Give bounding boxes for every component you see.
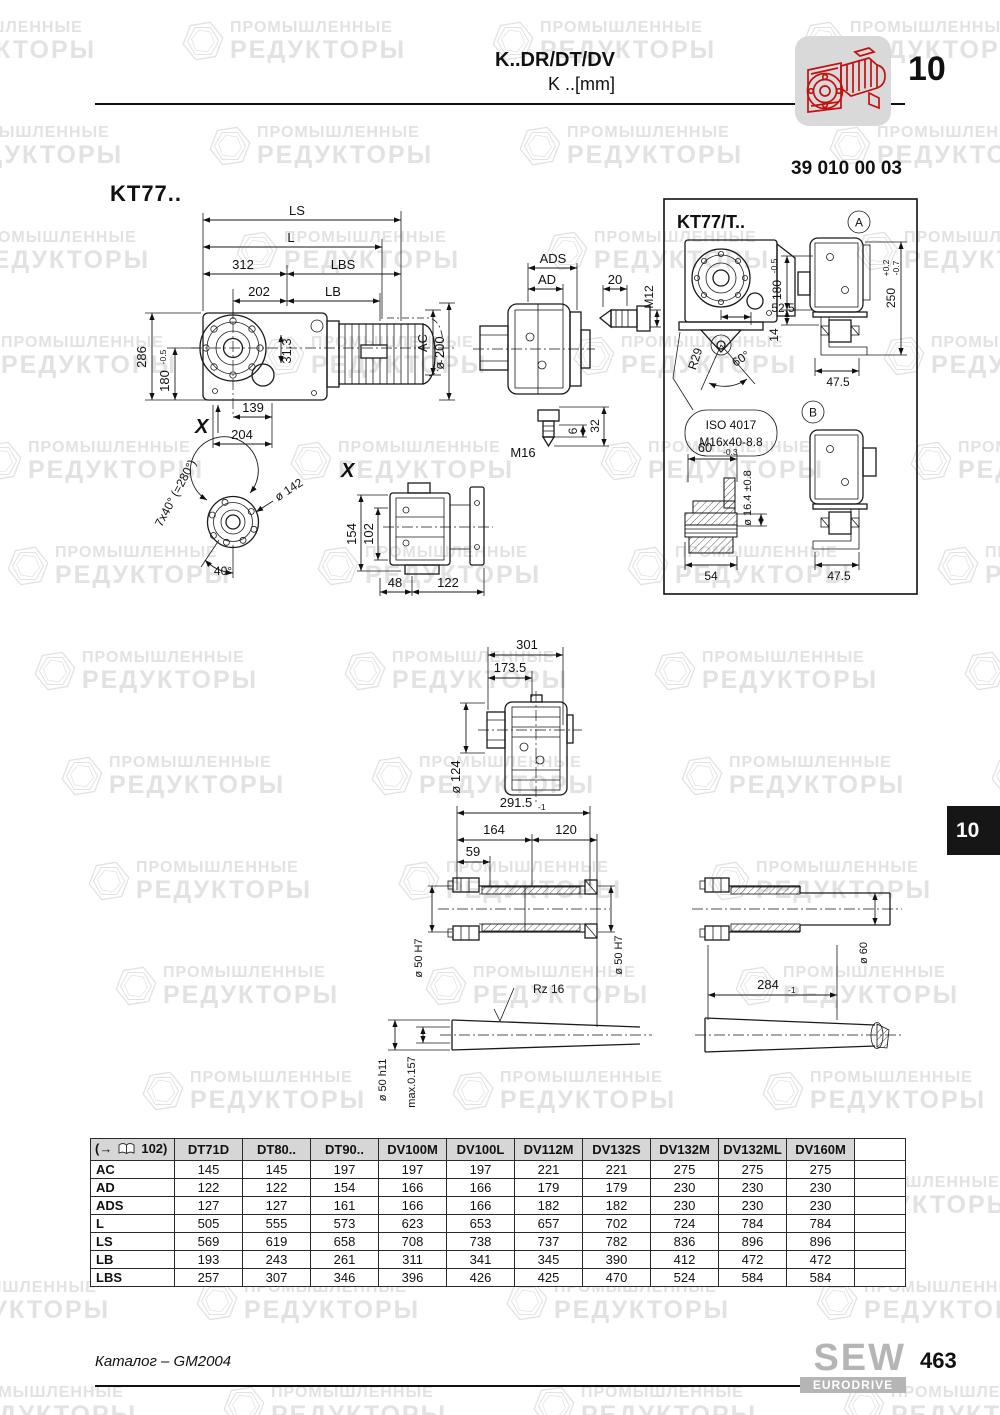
dim-value: 307 bbox=[243, 1269, 311, 1287]
dim-value: 584 bbox=[787, 1269, 855, 1287]
dim-60deg: 60° bbox=[729, 348, 752, 370]
customer-shaft-right bbox=[695, 1018, 902, 1052]
dim-204: 204 bbox=[231, 427, 253, 442]
dim-value: 122 bbox=[243, 1179, 311, 1197]
dim-value: 275 bbox=[787, 1161, 855, 1179]
watermark: ПРОМЫШЛЕННЫЕРЕДУКТОРЫ bbox=[652, 648, 878, 694]
dim-525: 52.5 bbox=[771, 301, 795, 315]
dim-180-tol: -0.5 bbox=[158, 349, 168, 364]
dim-120: 120 bbox=[555, 822, 577, 837]
dim-value: 230 bbox=[651, 1179, 719, 1197]
view-x-label: X bbox=[340, 460, 356, 482]
dim-value: 412 bbox=[651, 1251, 719, 1269]
dim-dia142: ø 142 bbox=[272, 475, 306, 504]
watermark: ПРОМЫШЛЕННЫЕРЕДУКТОРЫ bbox=[0, 18, 96, 64]
dim-dia60: ø 60 bbox=[858, 942, 870, 964]
dim-6: 6 bbox=[566, 427, 580, 434]
dim-value: 653 bbox=[447, 1215, 515, 1233]
row-label: L bbox=[91, 1215, 175, 1233]
dim-value: 396 bbox=[379, 1269, 447, 1287]
dim-250-told: -0.7 bbox=[891, 260, 901, 275]
column-header: DT71D bbox=[175, 1139, 243, 1161]
dim-value: 657 bbox=[515, 1215, 583, 1233]
book-icon bbox=[118, 1143, 135, 1158]
dim-475b: 47.5 bbox=[827, 569, 851, 583]
kt77t-label: KT77/T.. bbox=[677, 212, 745, 232]
dim-dia50-left: ø 50 H7 bbox=[413, 938, 425, 977]
watermark: ПРОМЫШЛЕННЫЕРЕДУКТОРЫ bbox=[221, 1383, 447, 1415]
customer-shaft-left: Rz 16 ø 50 h11 max.0.157 bbox=[377, 982, 652, 1108]
dim-value: 345 bbox=[515, 1251, 583, 1269]
mid-view-body bbox=[478, 691, 582, 803]
dim-60: 60 bbox=[698, 440, 712, 455]
dim-164: 164 bbox=[483, 822, 505, 837]
dim-value: 122 bbox=[175, 1179, 243, 1197]
dim-value: 426 bbox=[447, 1269, 515, 1287]
dim-value: 573 bbox=[311, 1215, 379, 1233]
mid-view: 301 173.5 ø 124 bbox=[420, 625, 640, 805]
table-ref-cell: (→102) bbox=[91, 1139, 175, 1161]
dim-301: 301 bbox=[516, 637, 538, 652]
dim-value: 166 bbox=[379, 1179, 447, 1197]
table-header-row: (→102) DT71DDT80..DT90..DV100MDV100LDV11… bbox=[91, 1139, 906, 1161]
dim-value-empty bbox=[855, 1161, 906, 1179]
dim-l: L bbox=[287, 230, 294, 245]
dim-value: 127 bbox=[243, 1197, 311, 1215]
dim-value: 154 bbox=[311, 1179, 379, 1197]
front-view-dimensions: LS L 312 LBS 202 LB 286 180 -0.5 31.3 bbox=[134, 203, 455, 448]
dim-value: 584 bbox=[719, 1269, 787, 1287]
catalog-name: Каталог – GM2004 bbox=[95, 1353, 231, 1370]
dim-2915: 291.5 bbox=[500, 795, 533, 810]
front-view bbox=[191, 303, 457, 417]
dim-value: 896 bbox=[719, 1233, 787, 1251]
column-header: DV100M bbox=[379, 1139, 447, 1161]
dim-value: 145 bbox=[175, 1161, 243, 1179]
row-label: LB bbox=[91, 1251, 175, 1269]
dim-value: 182 bbox=[583, 1197, 651, 1215]
table-row: AD122122154166166179179230230230 bbox=[91, 1179, 906, 1197]
column-header: DV160M bbox=[787, 1139, 855, 1161]
side-tab-label: 10 bbox=[956, 819, 979, 843]
dim-value: 193 bbox=[175, 1251, 243, 1269]
dim-value: 784 bbox=[719, 1215, 787, 1233]
dim-value: 243 bbox=[243, 1251, 311, 1269]
dim-max-runout: max.0.157 bbox=[406, 1056, 418, 1107]
kt77t-box: KT77/T.. A 52.5 bbox=[663, 198, 918, 595]
dim-value: 197 bbox=[311, 1161, 379, 1179]
dim-value: 221 bbox=[515, 1161, 583, 1179]
dim-m16: M16 bbox=[510, 445, 535, 460]
watermark: ПРОМЫШЛЕННЫЕРЕДУКТОРЫ bbox=[140, 1068, 366, 1114]
dim-value: 197 bbox=[447, 1161, 515, 1179]
dim-20: 20 bbox=[608, 272, 622, 287]
column-header-empty bbox=[855, 1139, 906, 1161]
watermark: ПРОМЫШЛЕННЫЕРЕДУКТОРЫ bbox=[0, 123, 123, 169]
column-header: DT80.. bbox=[243, 1139, 311, 1161]
dim-value: 311 bbox=[379, 1251, 447, 1269]
sew-logo: SEW EURODRIVE bbox=[800, 1340, 906, 1393]
dim-m12: M12 bbox=[642, 285, 656, 309]
dim-122: 122 bbox=[437, 575, 459, 590]
dim-value: 261 bbox=[311, 1251, 379, 1269]
watermark: ПРОМЫШЛЕННЫЕРЕДУКТОРЫ bbox=[59, 753, 285, 799]
row-label: LBS bbox=[91, 1269, 175, 1287]
watermark: ПРОМЫШЛЕННЫЕРЕДУКТОРЫ bbox=[962, 648, 1000, 694]
dim-54: 54 bbox=[704, 569, 718, 583]
dim-value: 738 bbox=[447, 1233, 515, 1251]
dim-value: 221 bbox=[583, 1161, 651, 1179]
chapter-side-tab: 10 bbox=[947, 806, 1000, 855]
dim-table: (→102) DT71DDT80..DT90..DV100MDV100LDV11… bbox=[90, 1138, 906, 1287]
dim-dia200: ø 200 bbox=[432, 336, 447, 369]
dim-value: 555 bbox=[243, 1215, 311, 1233]
dim-value: 619 bbox=[243, 1233, 311, 1251]
dim-60-tol: -0.3 bbox=[723, 447, 738, 457]
catalog-page: ПРОМЫШЛЕННЫЕРЕДУКТОРЫПРОМЫШЛЕННЫЕРЕДУКТО… bbox=[0, 0, 1000, 1415]
column-header: DV100L bbox=[447, 1139, 515, 1161]
dim-value: 127 bbox=[175, 1197, 243, 1215]
dim-value: 623 bbox=[379, 1215, 447, 1233]
dim-ls: LS bbox=[289, 203, 305, 218]
table-row: AC145145197197197221221275275275 bbox=[91, 1161, 906, 1179]
sew-wordmark: SEW bbox=[800, 1340, 906, 1376]
units-subtitle: K ..[mm] bbox=[420, 72, 615, 96]
dim-250-tolu: +0.2 bbox=[881, 259, 891, 276]
dim-32: 32 bbox=[588, 419, 602, 433]
view-b-label: B bbox=[809, 406, 817, 420]
watermark: ПРОМЫШЛЕННЫЕРЕДУКТОРЫ bbox=[113, 963, 339, 1009]
dim-value: 569 bbox=[175, 1233, 243, 1251]
shaft-drawings: 291.5 -1 164 120 59 bbox=[370, 790, 1000, 1120]
dim-value: 341 bbox=[447, 1251, 515, 1269]
dim-284-tol: -1 bbox=[788, 985, 796, 995]
dim-ac: AC bbox=[415, 334, 430, 352]
row-label: LS bbox=[91, 1233, 175, 1251]
watermark: ПРОМЫШЛЕННЫЕРЕДУКТОРЫ bbox=[0, 1383, 137, 1415]
dim-value: 782 bbox=[583, 1233, 651, 1251]
detail-x-side-view: 154 102 48 122 bbox=[344, 483, 493, 596]
dim-value: 346 bbox=[311, 1269, 379, 1287]
dim-lbs: LBS bbox=[331, 257, 356, 272]
chapter-number: 10 bbox=[908, 50, 978, 89]
header-rule bbox=[95, 103, 905, 105]
watermark: ПРОМЫШЛЕННЫЕРЕДУКТОРЫ bbox=[908, 438, 1000, 484]
dim-250: 250 bbox=[884, 288, 898, 308]
m16-bolt: 6 32 M16 bbox=[510, 407, 609, 460]
watermark: ПРОМЫШЛЕННЫЕРЕДУКТОРЫ bbox=[180, 18, 406, 64]
dim-value-empty bbox=[855, 1251, 906, 1269]
dim-value: 472 bbox=[787, 1251, 855, 1269]
dim-value: 145 bbox=[243, 1161, 311, 1179]
dim-475a: 47.5 bbox=[826, 375, 850, 389]
dim-ad: AD bbox=[538, 272, 556, 287]
watermark: ПРОМЫШЛЕННЫЕРЕДУКТОРЫ bbox=[32, 648, 258, 694]
eurodrive-bar: EURODRIVE bbox=[800, 1377, 906, 1393]
dim-180: 180 bbox=[157, 370, 172, 392]
kt77t-bushing-section: 60 -0.3 ø 16.4 ±0.8 54 bbox=[685, 440, 767, 583]
dim-value-empty bbox=[855, 1233, 906, 1251]
dim-dia164: ø 16.4 ±0.8 bbox=[742, 470, 754, 526]
dim-value: 179 bbox=[583, 1179, 651, 1197]
dim-dia124: ø 124 bbox=[448, 760, 463, 793]
dim-value: 179 bbox=[515, 1179, 583, 1197]
dim-2915-tol: -1 bbox=[538, 802, 546, 812]
dim-value: 658 bbox=[311, 1233, 379, 1251]
dim-t180-tol: -0.5 bbox=[769, 258, 779, 273]
dim-value-empty bbox=[855, 1269, 906, 1287]
dim-202: 202 bbox=[248, 284, 270, 299]
table-row: LB193243261311341345390412472472 bbox=[91, 1251, 906, 1269]
dim-value: 708 bbox=[379, 1233, 447, 1251]
dim-value: 836 bbox=[651, 1233, 719, 1251]
row-label: AD bbox=[91, 1179, 175, 1197]
dim-value: 257 bbox=[175, 1269, 243, 1287]
m12-stud: 20 M12 bbox=[600, 272, 661, 331]
page-number: 463 bbox=[920, 1348, 957, 1374]
kt77t-side-view-b: 47.5 bbox=[810, 430, 876, 583]
watermark: ПРОМЫШЛЕННЫЕРЕДУКТОРЫ bbox=[86, 858, 312, 904]
dim-dia50-customer: ø 50 h11 bbox=[377, 1059, 389, 1102]
dim-r29: R29 bbox=[685, 346, 705, 372]
table-row: LS569619658708738737782836896896 bbox=[91, 1233, 906, 1251]
adapter-side-view: ADS AD 20 M12 bbox=[473, 251, 661, 460]
dim-value: 161 bbox=[311, 1197, 379, 1215]
dim-value: 230 bbox=[787, 1197, 855, 1215]
dim-value: 702 bbox=[583, 1215, 651, 1233]
series-title: K..DR/DT/DV bbox=[420, 48, 615, 72]
page-title: K..DR/DT/DV K ..[mm] bbox=[420, 48, 615, 96]
dim-dia50-right: ø 50 H7 bbox=[613, 935, 625, 974]
dim-value: 505 bbox=[175, 1215, 243, 1233]
column-header: DV112M bbox=[515, 1139, 583, 1161]
dim-value: 472 bbox=[719, 1251, 787, 1269]
dim-value: 230 bbox=[719, 1179, 787, 1197]
solid-shaft bbox=[692, 878, 902, 940]
dim-value: 166 bbox=[447, 1179, 515, 1197]
dim-value: 197 bbox=[379, 1161, 447, 1179]
dim-value-empty bbox=[855, 1215, 906, 1233]
dim-value-empty bbox=[855, 1179, 906, 1197]
dim-value: 166 bbox=[379, 1197, 447, 1215]
view-x-arrow-label: X bbox=[194, 416, 210, 438]
column-header: DV132M bbox=[651, 1139, 719, 1161]
table-row: LBS257307346396426425470524584584 bbox=[91, 1269, 906, 1287]
dim-value: 230 bbox=[651, 1197, 719, 1215]
main-drawing: LS L 312 LBS 202 LB 286 180 -0.5 31.3 bbox=[95, 185, 670, 625]
dim-value: 275 bbox=[651, 1161, 719, 1179]
detail-x-flange: 7x40° (=280°) ø 142 40° X bbox=[152, 437, 356, 578]
dim-ads: ADS bbox=[540, 251, 567, 266]
dim-14: 14 bbox=[767, 328, 781, 342]
dim-value-empty bbox=[855, 1197, 906, 1215]
column-header: DV132S bbox=[583, 1139, 651, 1161]
dim-lb: LB bbox=[325, 284, 341, 299]
watermark: ПРОМЫШЛЕННЫЕРЕДУКТОРЫ bbox=[207, 123, 433, 169]
row-label: AC bbox=[91, 1161, 175, 1179]
iso-line1: ISO 4017 bbox=[706, 418, 757, 432]
dim-value: 230 bbox=[787, 1179, 855, 1197]
table-row: ADS127127161166166182182230230230 bbox=[91, 1197, 906, 1215]
dim-value: 896 bbox=[787, 1233, 855, 1251]
dim-7x40: 7x40° (=280°) bbox=[152, 457, 199, 529]
dim-value: 390 bbox=[583, 1251, 651, 1269]
dim-312: 312 bbox=[232, 257, 254, 272]
drawing-number: 39 010 00 03 bbox=[690, 158, 902, 180]
dim-value: 182 bbox=[515, 1197, 583, 1215]
dim-value: 737 bbox=[515, 1233, 583, 1251]
dim-286: 286 bbox=[134, 346, 149, 368]
dim-value: 166 bbox=[447, 1197, 515, 1215]
watermark: ПРОМЫШЛЕННЫЕРЕДУКТОРЫ bbox=[935, 543, 1000, 589]
dim-139: 139 bbox=[242, 400, 264, 415]
watermark: ПРОМЫШЛЕННЫЕРЕДУКТОРЫ bbox=[531, 1383, 757, 1415]
dim-102: 102 bbox=[361, 523, 376, 545]
dim-t180: 180 bbox=[770, 280, 784, 300]
dim-rz16: Rz 16 bbox=[533, 982, 565, 996]
dim-1735: 173.5 bbox=[494, 660, 527, 675]
dim-313: 31.3 bbox=[279, 338, 294, 363]
dim-value: 724 bbox=[651, 1215, 719, 1233]
hollow-shaft bbox=[438, 878, 610, 940]
dim-59: 59 bbox=[466, 844, 480, 859]
dim-value: 275 bbox=[719, 1161, 787, 1179]
dim-value: 230 bbox=[719, 1197, 787, 1215]
dim-value: 425 bbox=[515, 1269, 583, 1287]
dim-40deg: 40° bbox=[214, 564, 232, 578]
row-label: ADS bbox=[91, 1197, 175, 1215]
dim-value: 784 bbox=[787, 1215, 855, 1233]
dim-value: 524 bbox=[651, 1269, 719, 1287]
dim-48: 48 bbox=[388, 575, 402, 590]
column-header: DV132ML bbox=[719, 1139, 787, 1161]
dim-284: 284 bbox=[757, 977, 779, 992]
table-row: L505555573623653657702724784784 bbox=[91, 1215, 906, 1233]
dim-value: 470 bbox=[583, 1269, 651, 1287]
gearmotor-icon bbox=[795, 36, 891, 126]
footer-rule bbox=[95, 1385, 905, 1387]
column-header: DT90.. bbox=[311, 1139, 379, 1161]
view-a-label: A bbox=[855, 216, 863, 230]
dim-154: 154 bbox=[344, 523, 359, 545]
